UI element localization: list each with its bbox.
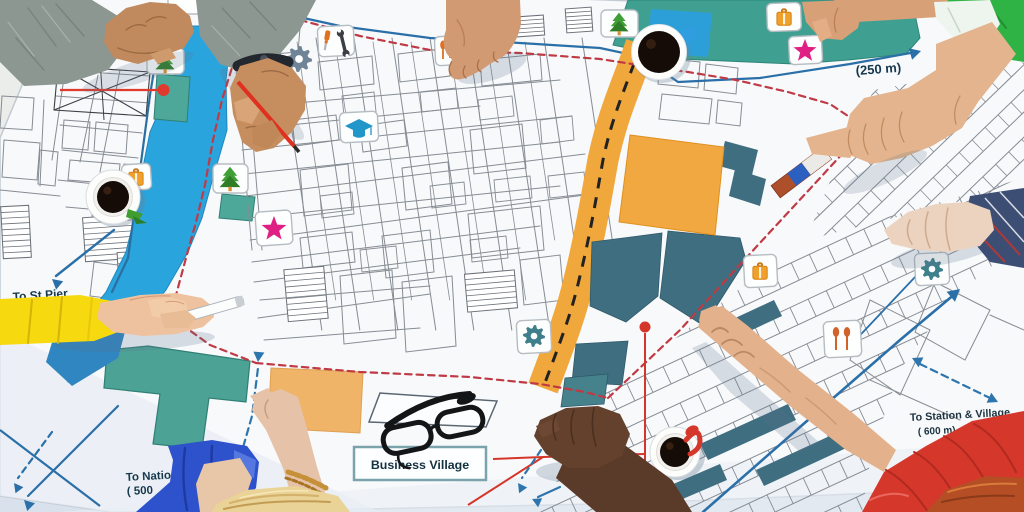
svg-text:Business Village: Business Village bbox=[371, 458, 469, 472]
svg-text:To Natio: To Natio bbox=[126, 470, 172, 484]
svg-text:(250 m): (250 m) bbox=[855, 60, 901, 78]
svg-text:( 500: ( 500 bbox=[127, 485, 154, 498]
